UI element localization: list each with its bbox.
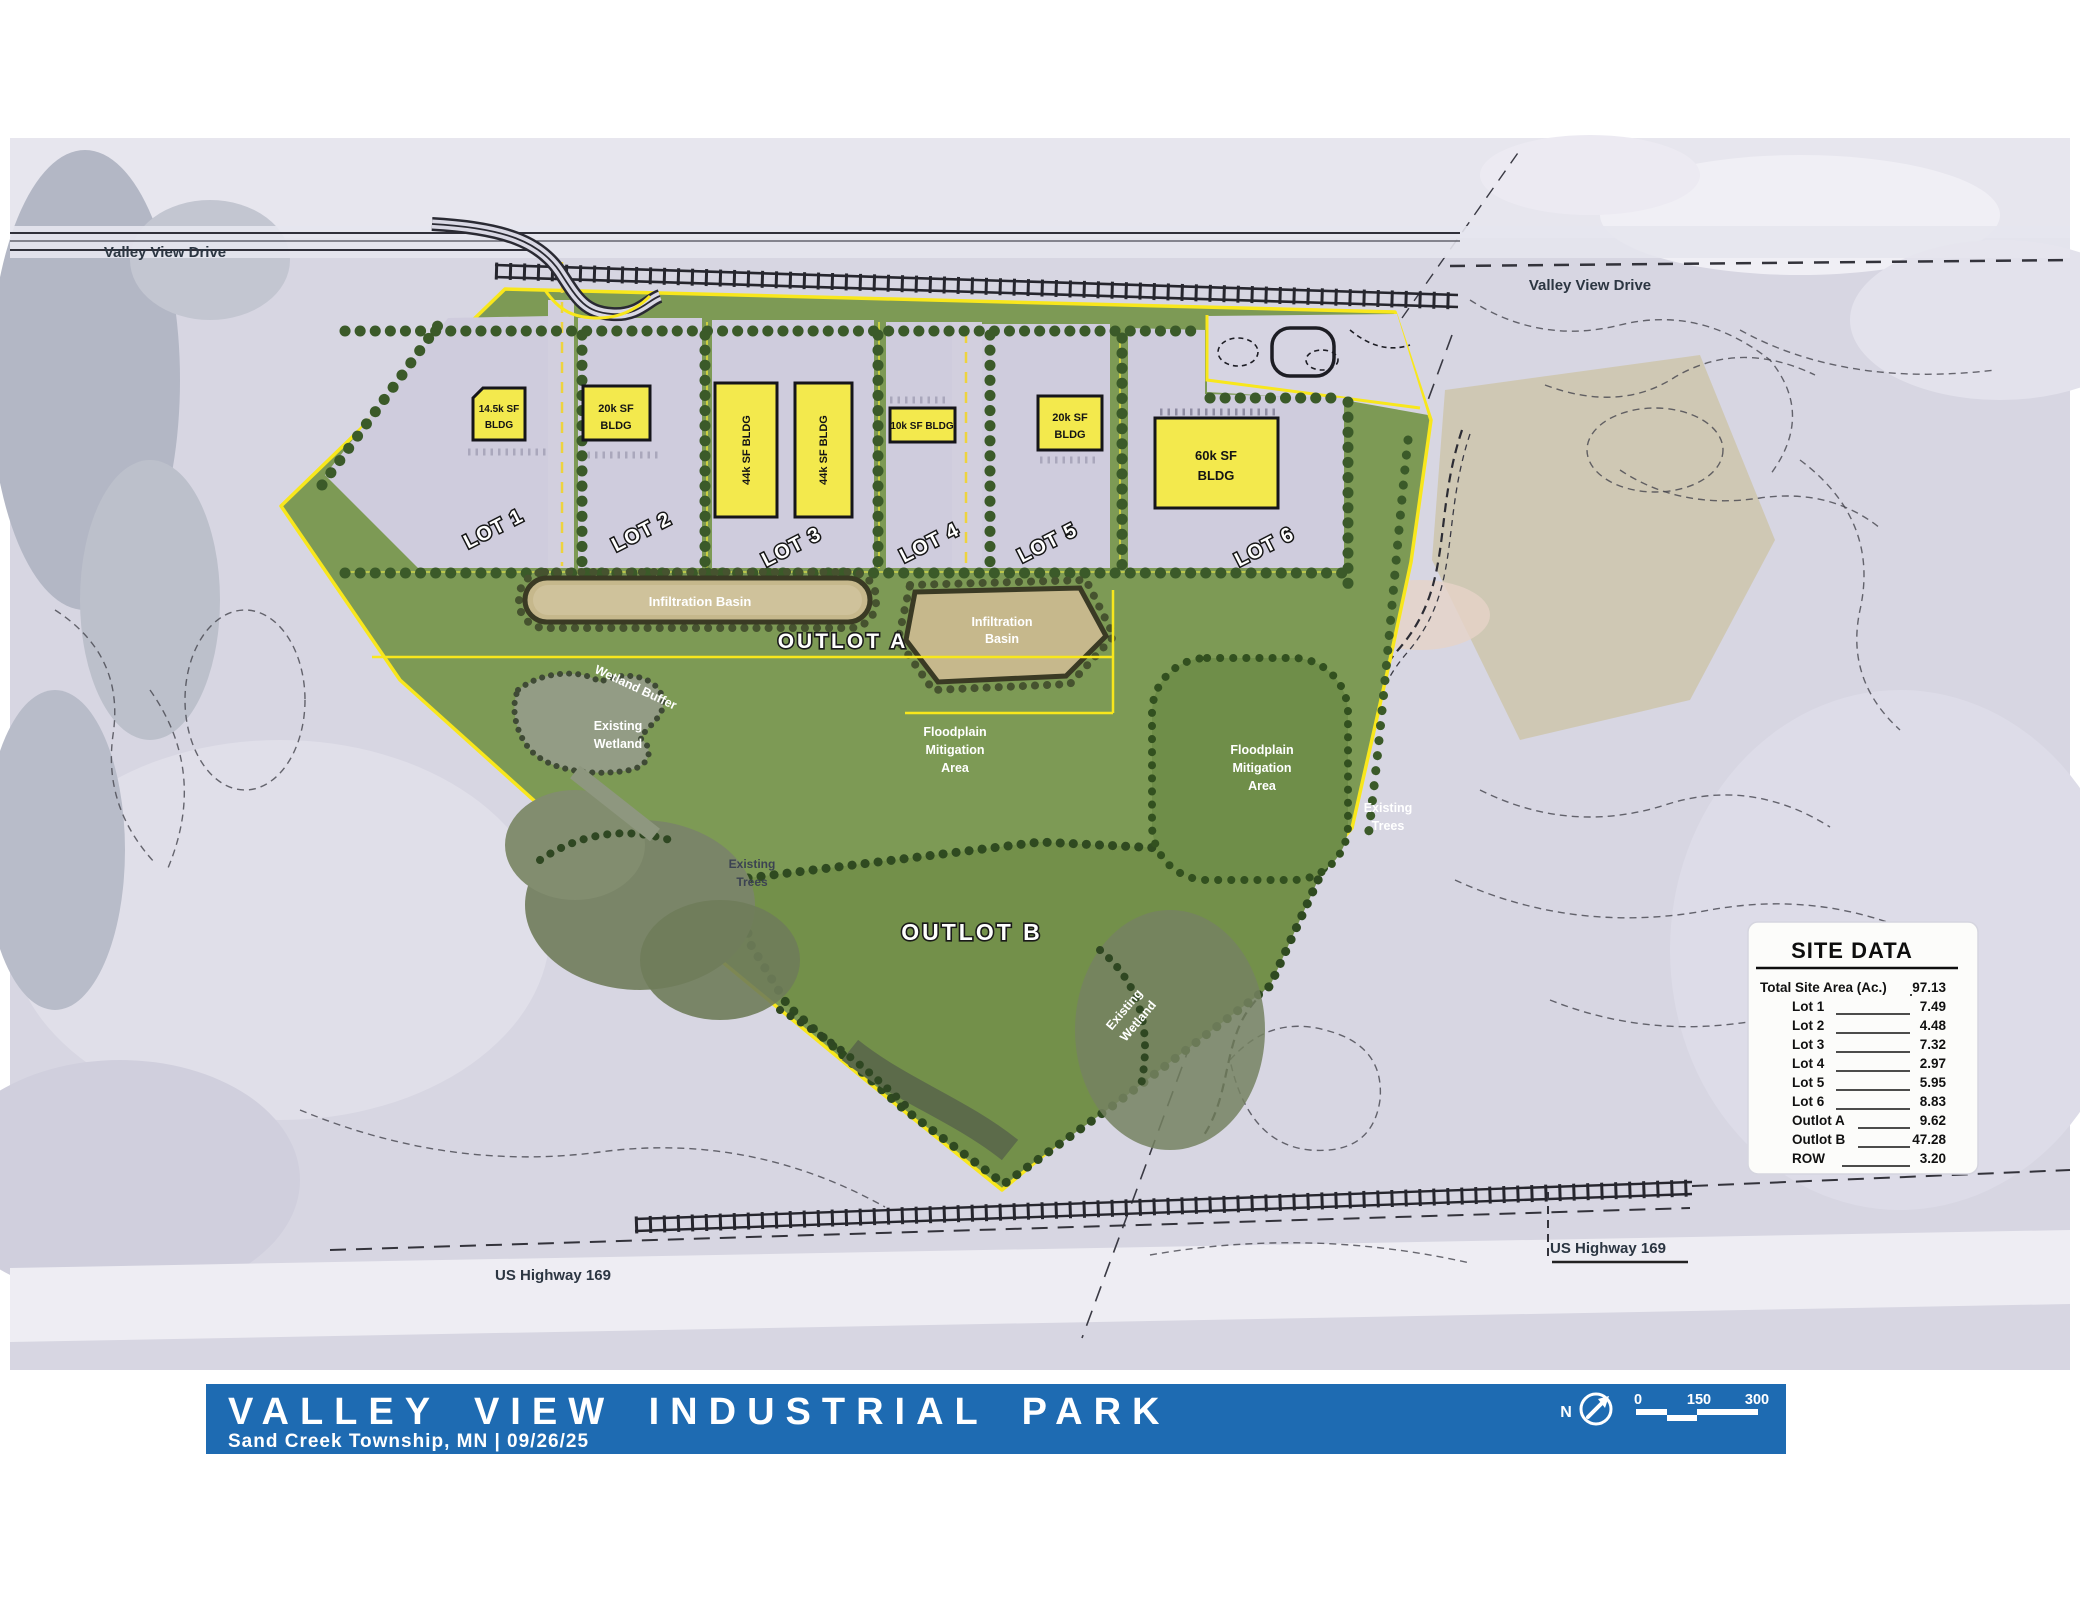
lot-6-building-label: 60k SF <box>1195 448 1237 463</box>
site-data-row-value: 97.13 <box>1912 980 1946 995</box>
valley-view-drive-label-right: Valley View Drive <box>1529 277 1651 294</box>
site-data-row-value: 8.83 <box>1920 1094 1947 1109</box>
infiltration-basin-2-label: Basin <box>985 632 1019 646</box>
site-data-panel: SITE DATA Total Site Area (Ac.) 97.13 Lo… <box>1748 922 1978 1174</box>
site-data-row-label: Outlot A <box>1792 1113 1845 1128</box>
site-data-row-value: 4.48 <box>1920 1018 1947 1033</box>
scale-tick-300: 300 <box>1745 1392 1769 1408</box>
site-data-row-label: Lot 3 <box>1792 1037 1825 1052</box>
sheet-subtitle: Sand Creek Township, MN | 09/26/25 <box>228 1431 589 1452</box>
site-plan-map: 14.5k SF BLDG 20k SF BLDG 44k SF BLDG 44… <box>0 0 2080 1607</box>
site-data-row-label: Lot 2 <box>1792 1018 1824 1033</box>
lot-5-building-label: 20k SF <box>1052 412 1088 424</box>
title-bar: VALLEY VIEW INDUSTRIAL PARK Sand Creek T… <box>206 1384 1786 1454</box>
existing-trees-left-label: Existing <box>729 857 776 871</box>
site-data-row-value: 47.28 <box>1912 1132 1946 1147</box>
site-data-row-value: 9.62 <box>1920 1113 1946 1128</box>
lot-6-building-label: BLDG <box>1198 468 1235 483</box>
sheet-title: VALLEY VIEW INDUSTRIAL PARK <box>228 1391 1170 1433</box>
site-data-row-label: Lot 1 <box>1792 999 1825 1014</box>
lot-4-building-label: 10k SF BLDG <box>890 421 954 432</box>
existing-wetland-left-label: Wetland <box>594 737 642 751</box>
site-data-row-value: 2.97 <box>1920 1056 1946 1071</box>
site-data-row-label: Total Site Area (Ac.) <box>1760 980 1887 995</box>
us-highway-169-label-right: US Highway 169 <box>1550 1240 1666 1257</box>
us-highway-169-label-left: US Highway 169 <box>495 1267 611 1284</box>
existing-trees-right-label: Trees <box>1372 819 1405 833</box>
infiltration-basin-2-label: Infiltration <box>971 615 1032 629</box>
site-data-row-label: Outlot B <box>1792 1132 1845 1147</box>
lot-3-building-b-label: 44k SF BLDG <box>818 415 830 485</box>
floodplain-label-right: Area <box>1248 779 1277 793</box>
lot-5-building-label: BLDG <box>1054 429 1085 441</box>
lot-2-building-label: BLDG <box>600 420 631 432</box>
site-plan-sheet: 14.5k SF BLDG 20k SF BLDG 44k SF BLDG 44… <box>0 0 2080 1607</box>
lot-1-building-label: BLDG <box>485 420 514 431</box>
valley-view-drive-label-left: Valley View Drive <box>104 244 226 261</box>
existing-trees-left-label: Trees <box>736 875 768 889</box>
site-data-row-label: Lot 6 <box>1792 1094 1825 1109</box>
floodplain-label-left: Area <box>941 761 970 775</box>
site-data-row-label: Lot 5 <box>1792 1075 1825 1090</box>
lot-6-building <box>1155 418 1278 508</box>
lot-2-building-label: 20k SF <box>598 403 634 415</box>
floodplain-label-right: Mitigation <box>1232 761 1291 775</box>
north-label: N <box>1560 1404 1572 1421</box>
site-data-row-label: ROW <box>1792 1151 1825 1166</box>
existing-wetland-left-label: Existing <box>594 719 643 733</box>
site-data-row-value: 7.49 <box>1920 999 1946 1014</box>
lot-1-building-label: 14.5k SF <box>479 404 520 415</box>
scale-tick-0: 0 <box>1634 1392 1642 1408</box>
site-data-row-label: Lot 4 <box>1792 1056 1825 1071</box>
floodplain-label-left: Mitigation <box>925 743 984 757</box>
floodplain-label-right: Floodplain <box>1230 743 1293 757</box>
infiltration-basin-1-label: Infiltration Basin <box>649 594 752 609</box>
site-data-row-value: 3.20 <box>1920 1151 1946 1166</box>
scale-tick-150: 150 <box>1687 1392 1711 1408</box>
outlot-b-label: OUTLOT B <box>901 919 1043 945</box>
outlot-a-label: OUTLOT A <box>778 630 909 653</box>
site-data-row-value: 7.32 <box>1920 1037 1946 1052</box>
lot-3-building-a-label: 44k SF BLDG <box>741 415 753 485</box>
existing-trees-right-label: Existing <box>1364 801 1413 815</box>
floodplain-label-left: Floodplain <box>923 725 986 739</box>
site-data-row-value: 5.95 <box>1920 1075 1947 1090</box>
site-data-title: SITE DATA <box>1791 938 1913 963</box>
